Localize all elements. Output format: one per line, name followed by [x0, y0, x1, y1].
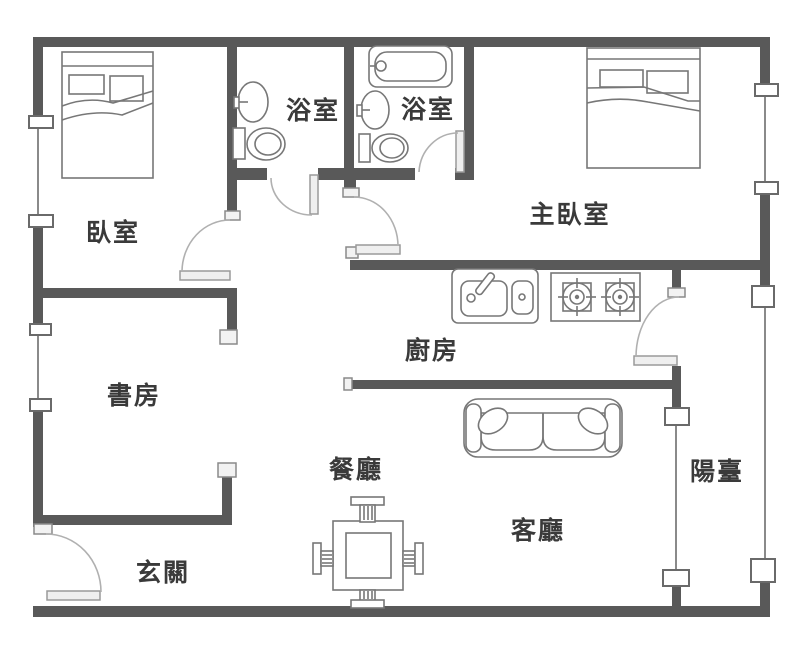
floor-plan-page: 臥室 浴室 浴室 主臥室 廚房 書房 餐廳 客廳 玄關 陽臺: [0, 0, 800, 667]
sofa-icon: [464, 399, 622, 457]
window-marker: [29, 215, 53, 227]
room-label-bedroom: 臥室: [86, 218, 140, 247]
wall-bedroom-bathroom-divider: [227, 37, 237, 212]
wall-bottom: [33, 606, 770, 617]
door-arc-entrance: [46, 534, 101, 592]
bathroom-1-fixtures: [233, 82, 285, 160]
wall-end-cap: [344, 378, 352, 390]
wall-hallway-stub: [227, 298, 237, 332]
wall-study-stub: [222, 477, 232, 517]
wall-balcony-stub-mid: [672, 366, 681, 410]
wall-bathroom2-right: [464, 37, 474, 180]
toilet-tank: [233, 128, 245, 159]
door-hinge-cap: [668, 288, 685, 297]
wall-left-segment: [33, 37, 43, 117]
kitchen-sink-icon: [452, 269, 538, 323]
room-label-entrance: 玄關: [136, 558, 190, 587]
window-marker: [30, 324, 51, 335]
stove-icon: [551, 273, 640, 321]
window-marker: [663, 570, 689, 586]
burner-center: [575, 295, 579, 299]
wall-study-bottom: [33, 515, 232, 525]
sink-tap: [234, 97, 239, 108]
window-marker: [755, 84, 778, 96]
wall-balcony-stub-top: [672, 270, 681, 289]
wall-right-segment: [760, 194, 770, 286]
door-leaf-bedroom: [180, 271, 230, 280]
burner-center: [618, 295, 622, 299]
window-marker: [751, 559, 775, 582]
door-leaf-balcony: [634, 356, 677, 365]
window-marker: [752, 286, 774, 307]
window-marker: [29, 116, 53, 128]
wall-kitchen-bottom: [348, 380, 681, 389]
bed-pillow: [69, 75, 104, 94]
wall-balcony-stub-bottom: [672, 586, 681, 611]
door-hinge-cap: [343, 188, 359, 197]
wall-end-cap: [218, 463, 236, 477]
chair-back: [415, 543, 423, 574]
chair-back: [351, 600, 384, 608]
door-leaf-bathroom-1: [310, 175, 318, 214]
room-label-living-room: 客廳: [511, 516, 565, 545]
wall-bathrooms-bottom: [318, 168, 415, 180]
door-hinge-cap: [34, 524, 52, 534]
wall-left-segment: [33, 227, 43, 325]
sink-basin-right: [512, 281, 533, 314]
bed-icon: [62, 52, 153, 178]
door-hinge-cap: [225, 211, 240, 220]
wall-left-segment: [33, 411, 43, 527]
wall-bedroom-study-divider: [33, 288, 237, 298]
table-top: [333, 521, 403, 590]
chair-back: [351, 497, 384, 505]
window-marker: [665, 408, 689, 425]
master-bed-icon: [587, 48, 700, 168]
door-arc-bedroom: [182, 220, 230, 271]
bed-frame: [62, 52, 153, 178]
wall-master-door-stub: [346, 176, 356, 189]
door-leaf-entrance: [47, 591, 100, 600]
wall-right-segment: [760, 37, 770, 84]
chair-back: [313, 543, 321, 574]
room-label-dining-room: 餐廳: [329, 455, 383, 484]
room-label-balcony: 陽臺: [690, 458, 744, 486]
dining-table-icon: [313, 497, 423, 608]
floor-plan: 臥室 浴室 浴室 主臥室 廚房 書房 餐廳 客廳 玄關 陽臺: [0, 0, 800, 667]
wall-end-cap: [220, 330, 237, 344]
sink-tap: [357, 105, 362, 116]
wall-right-segment: [760, 582, 770, 612]
room-label-master-bedroom: 主臥室: [529, 200, 610, 229]
wall-bathrooms-bottom: [237, 168, 267, 180]
bed-pillow: [600, 70, 643, 87]
room-label-bathroom-2: 浴室: [401, 95, 455, 124]
window-marker: [755, 182, 778, 194]
door-leaf-bathroom-2: [456, 131, 464, 172]
bed-pillow: [110, 76, 143, 101]
door-arc-bathroom-2: [419, 133, 458, 172]
room-label-kitchen: 廚房: [405, 336, 459, 365]
wall-kitchen-top: [350, 260, 770, 270]
door-leaf-master-bedroom: [356, 245, 400, 254]
door-arc-bathroom-1: [271, 178, 312, 215]
room-label-study: 書房: [107, 381, 161, 410]
toilet-tank: [359, 134, 370, 162]
window-marker: [30, 399, 51, 411]
door-arc-master-bedroom: [354, 197, 398, 246]
door-arc-balcony: [636, 297, 679, 357]
wall-bathroom-divider: [344, 37, 354, 188]
room-label-bathroom-1: 浴室: [286, 96, 340, 125]
